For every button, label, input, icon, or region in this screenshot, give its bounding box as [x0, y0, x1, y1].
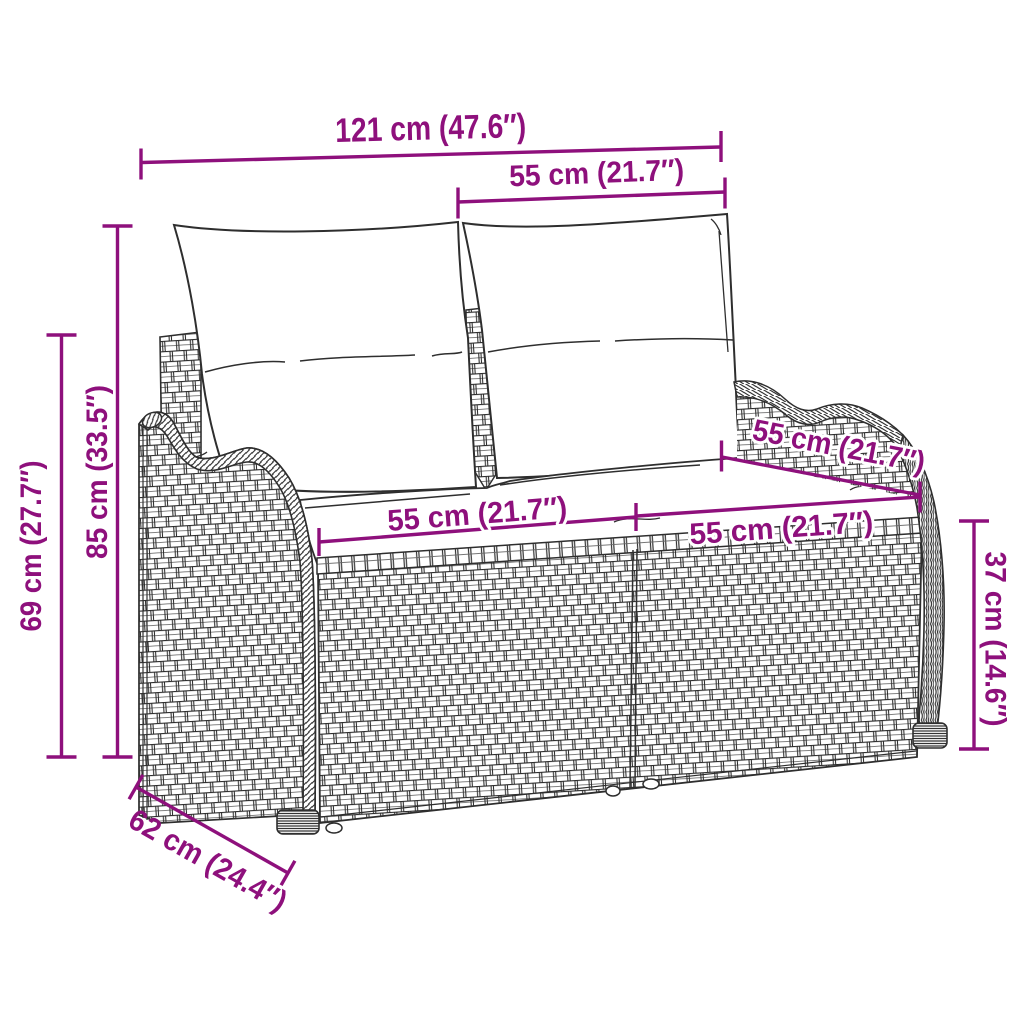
- svg-text:121 cm (47.6″): 121 cm (47.6″): [335, 107, 527, 150]
- svg-text:85 cm (33.5″): 85 cm (33.5″): [81, 385, 114, 559]
- svg-text:55 cm (21.7″): 55 cm (21.7″): [509, 154, 685, 194]
- svg-text:37 cm (14.6″): 37 cm (14.6″): [979, 552, 1012, 727]
- svg-text:69 cm (27.7″): 69 cm (27.7″): [15, 461, 48, 632]
